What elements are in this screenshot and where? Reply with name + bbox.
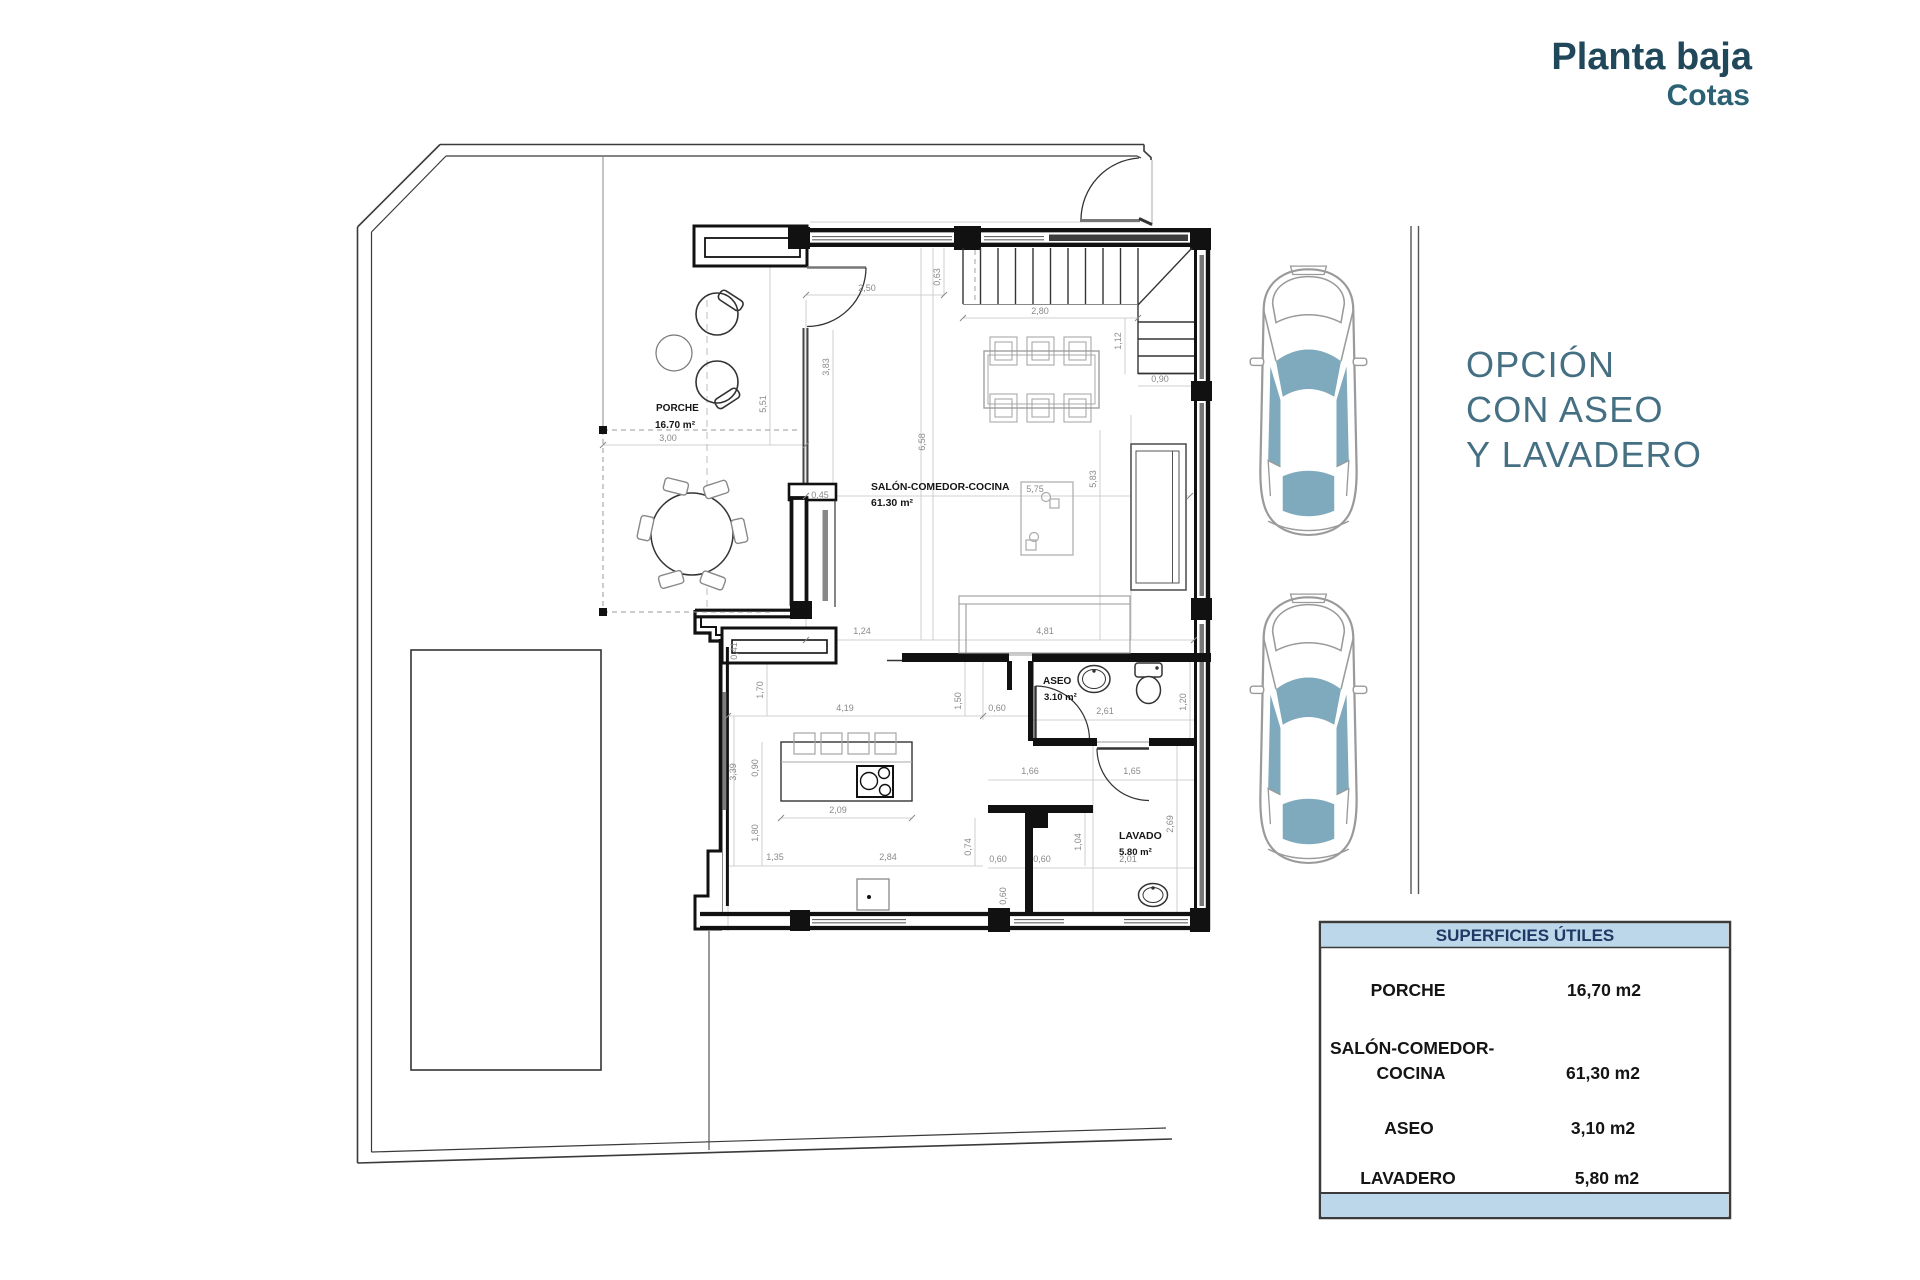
svg-text:Planta baja: Planta baja [1551, 36, 1752, 78]
svg-text:Cotas: Cotas [1667, 79, 1750, 112]
svg-text:2,50: 2,50 [858, 283, 876, 293]
svg-text:0,41: 0,41 [729, 642, 739, 660]
svg-text:ASEO: ASEO [1043, 676, 1072, 687]
svg-text:0,60: 0,60 [989, 854, 1007, 864]
svg-text:Y LAVADERO: Y LAVADERO [1466, 434, 1702, 475]
svg-text:0,60: 0,60 [988, 703, 1006, 713]
svg-text:2,80: 2,80 [1031, 306, 1049, 316]
svg-text:2,61: 2,61 [1096, 706, 1114, 716]
svg-text:LAVADO: LAVADO [1119, 830, 1162, 842]
svg-text:61.30 m²: 61.30 m² [871, 497, 914, 509]
svg-text:3,00: 3,00 [659, 433, 677, 443]
svg-text:1,04: 1,04 [1073, 833, 1083, 851]
svg-text:0,90: 0,90 [1151, 374, 1169, 384]
svg-text:5,51: 5,51 [758, 395, 768, 413]
svg-text:1,24: 1,24 [853, 626, 871, 636]
svg-text:2,69: 2,69 [1165, 815, 1175, 833]
svg-text:1,65: 1,65 [1123, 766, 1141, 776]
svg-text:3.10 m²: 3.10 m² [1044, 692, 1077, 703]
svg-text:1,35: 1,35 [766, 852, 784, 862]
svg-text:0,90: 0,90 [750, 759, 760, 777]
svg-text:5,75: 5,75 [1026, 484, 1044, 494]
svg-text:0,45: 0,45 [811, 490, 829, 500]
svg-text:4,19: 4,19 [836, 703, 854, 713]
svg-text:CON ASEO: CON ASEO [1466, 389, 1664, 430]
svg-text:ASEO: ASEO [1384, 1118, 1434, 1138]
svg-text:1,12: 1,12 [1113, 332, 1123, 350]
svg-text:16.70 m²: 16.70 m² [655, 420, 696, 431]
svg-text:SUPERFICIES ÚTILES: SUPERFICIES ÚTILES [1436, 926, 1615, 945]
svg-text:5.80 m²: 5.80 m² [1119, 847, 1152, 858]
svg-text:2,84: 2,84 [879, 852, 897, 862]
svg-text:6,58: 6,58 [917, 433, 927, 451]
svg-text:COCINA: COCINA [1376, 1063, 1445, 1083]
svg-text:SALÓN-COMEDOR-: SALÓN-COMEDOR- [1330, 1037, 1494, 1058]
svg-text:LAVADERO: LAVADERO [1360, 1168, 1456, 1188]
svg-text:3,83: 3,83 [821, 358, 831, 376]
svg-text:0,74: 0,74 [963, 838, 973, 856]
svg-text:1,50: 1,50 [953, 692, 963, 710]
svg-text:5,80 m2: 5,80 m2 [1575, 1168, 1639, 1188]
svg-text:1,20: 1,20 [1178, 693, 1188, 711]
svg-text:2,09: 2,09 [829, 805, 847, 815]
svg-text:1,66: 1,66 [1021, 766, 1039, 776]
svg-text:PORCHE: PORCHE [656, 403, 699, 414]
svg-text:3,39: 3,39 [728, 763, 738, 781]
svg-text:5,83: 5,83 [1088, 470, 1098, 488]
svg-text:1,70: 1,70 [755, 681, 765, 699]
svg-text:3,10 m2: 3,10 m2 [1571, 1118, 1635, 1138]
svg-text:61,30 m2: 61,30 m2 [1566, 1063, 1640, 1083]
svg-text:0,60: 0,60 [998, 887, 1008, 905]
svg-text:SALÓN-COMEDOR-COCINA: SALÓN-COMEDOR-COCINA [871, 480, 1010, 493]
svg-text:PORCHE: PORCHE [1371, 980, 1446, 1000]
svg-text:1,80: 1,80 [750, 824, 760, 842]
svg-text:0,60: 0,60 [1033, 854, 1051, 864]
svg-text:4,81: 4,81 [1036, 626, 1054, 636]
svg-text:16,70 m2: 16,70 m2 [1567, 980, 1641, 1000]
svg-text:0,63: 0,63 [932, 268, 942, 286]
svg-text:OPCIÓN: OPCIÓN [1466, 344, 1615, 385]
